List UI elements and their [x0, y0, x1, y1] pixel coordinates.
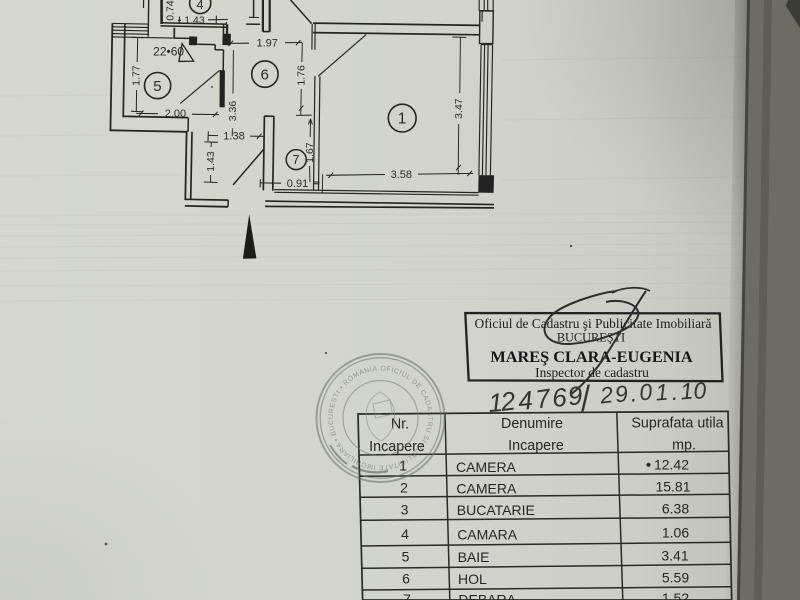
svg-text:2.00: 2.00 — [165, 108, 186, 120]
svg-text:.: . — [672, 379, 678, 405]
svg-text:6: 6 — [261, 67, 269, 84]
svg-text:0.74: 0.74 — [164, 0, 176, 21]
svg-text:6.38: 6.38 — [662, 500, 689, 516]
svg-text:3: 3 — [401, 502, 409, 518]
svg-text:BAIE: BAIE — [458, 549, 490, 565]
svg-text:1.43: 1.43 — [205, 151, 217, 172]
svg-text:1.67: 1.67 — [304, 142, 316, 163]
svg-text:7: 7 — [293, 153, 300, 167]
svg-text:15.81: 15.81 — [655, 478, 690, 494]
svg-text:4: 4 — [401, 526, 409, 542]
svg-text:4: 4 — [517, 385, 534, 416]
svg-text:1.52: 1.52 — [662, 590, 689, 600]
svg-text:mp.: mp. — [672, 438, 696, 454]
svg-text:Suprafata utila: Suprafata utila — [631, 416, 723, 432]
svg-text:3.41: 3.41 — [661, 547, 688, 563]
svg-text:Denumire: Denumire — [501, 416, 563, 432]
svg-text:2: 2 — [400, 480, 408, 496]
svg-text:1.06: 1.06 — [662, 524, 689, 540]
svg-text:3.47: 3.47 — [453, 98, 465, 119]
svg-text:CAMERA: CAMERA — [456, 480, 517, 496]
svg-text:0.91: 0.91 — [287, 178, 308, 190]
svg-text:Incapere: Incapere — [508, 438, 564, 454]
svg-text:BUCATARIE: BUCATARIE — [457, 502, 535, 518]
svg-text:1: 1 — [655, 379, 670, 406]
svg-text:1.97: 1.97 — [256, 38, 277, 50]
svg-text:2: 2 — [598, 381, 615, 408]
svg-text:1.43: 1.43 — [184, 15, 205, 27]
svg-text:7: 7 — [403, 591, 411, 600]
svg-text:4: 4 — [196, 0, 203, 12]
svg-text:3.58: 3.58 — [391, 169, 412, 181]
svg-text:0: 0 — [693, 377, 708, 404]
svg-text:1.38: 1.38 — [223, 131, 244, 143]
svg-text:5: 5 — [153, 78, 161, 95]
svg-text:6: 6 — [402, 571, 410, 587]
svg-text:12.42: 12.42 — [654, 456, 689, 472]
svg-text:5.59: 5.59 — [662, 569, 689, 585]
svg-text:CAMARA: CAMARA — [457, 526, 518, 542]
svg-text:3.36: 3.36 — [227, 101, 239, 122]
svg-text:Oficiul de Cadastru şi Publici: Oficiul de Cadastru şi Publicitate Imobi… — [475, 316, 712, 331]
svg-text:5: 5 — [402, 549, 410, 565]
svg-text:1: 1 — [398, 111, 407, 128]
svg-text:CAMERA: CAMERA — [456, 459, 517, 475]
svg-text:1.77: 1.77 — [131, 65, 143, 86]
svg-text:HOL: HOL — [458, 571, 487, 587]
svg-text:0: 0 — [638, 378, 653, 405]
svg-text:.: . — [631, 381, 637, 407]
svg-text:DEBARA: DEBARA — [458, 592, 516, 600]
svg-text:MAREŞ CLARA-EUGENIA: MAREŞ CLARA-EUGENIA — [490, 347, 692, 366]
svg-text:1.76: 1.76 — [295, 65, 307, 86]
